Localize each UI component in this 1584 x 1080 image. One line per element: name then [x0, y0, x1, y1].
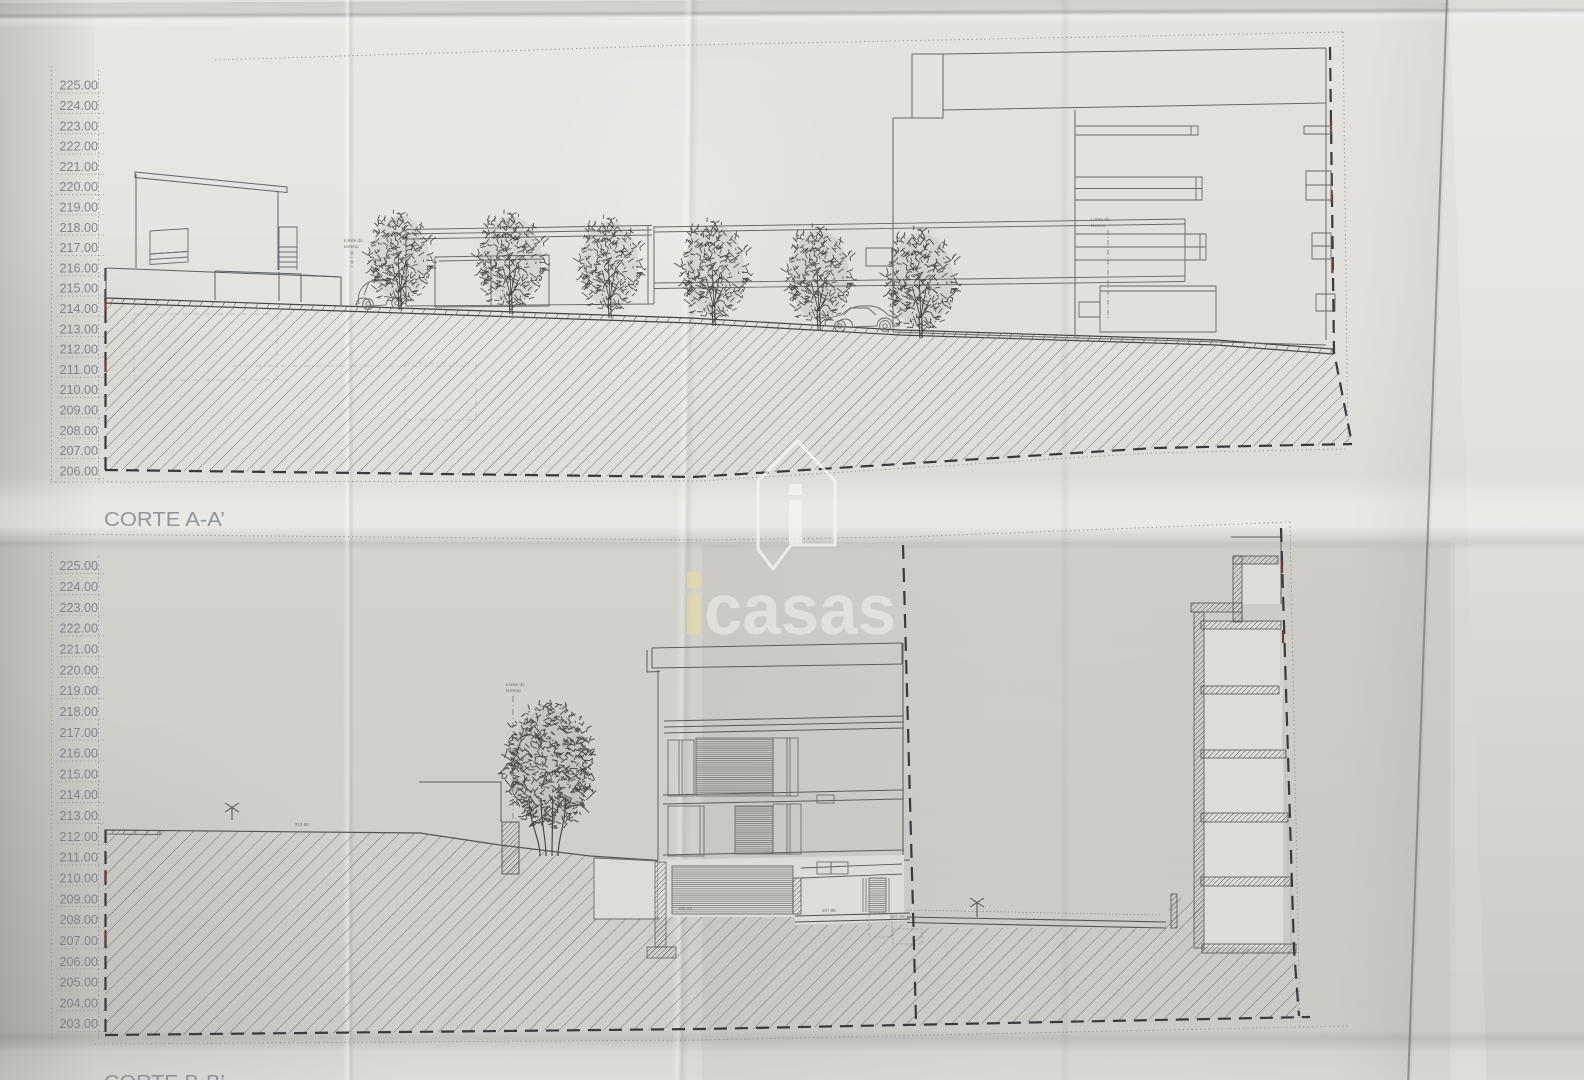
svg-text:221.00: 221.00: [60, 160, 99, 174]
svg-text:Limite do: Limite do: [1091, 217, 1110, 222]
svg-text:casas: casas: [704, 571, 896, 650]
svg-text:216.00: 216.00: [60, 747, 99, 761]
svg-text:terreno: terreno: [506, 688, 521, 693]
svg-text:211.00: 211.00: [60, 363, 99, 377]
svg-text:terreno: terreno: [1091, 223, 1106, 228]
svg-text:225.00: 225.00: [60, 79, 99, 93]
svg-text:212.00: 212.00: [60, 830, 99, 844]
svg-text:206.00: 206.00: [60, 464, 99, 478]
svg-text:208.00: 208.00: [60, 424, 99, 438]
svg-text:222.00: 222.00: [60, 140, 99, 154]
svg-text:terreno: terreno: [344, 244, 359, 249]
svg-text:217.00: 217.00: [60, 241, 99, 255]
svg-text:223.00: 223.00: [60, 601, 99, 615]
svg-text:220.00: 220.00: [60, 663, 99, 677]
svg-text:212.90: 212.90: [295, 822, 309, 827]
svg-text:216.00: 216.00: [60, 261, 99, 275]
svg-text:215.00: 215.00: [60, 767, 99, 781]
svg-text:224.00: 224.00: [60, 580, 99, 594]
svg-text:224.00: 224.00: [60, 99, 99, 113]
svg-text:207.85: 207.85: [822, 908, 836, 913]
svg-text:207.79: 207.79: [890, 914, 904, 919]
svg-text:212.00: 212.00: [60, 343, 99, 357]
svg-text:222.00: 222.00: [60, 622, 99, 636]
svg-text:209.00: 209.00: [60, 892, 99, 906]
svg-text:213.00: 213.00: [60, 809, 99, 823]
svg-text:223.00: 223.00: [60, 119, 99, 133]
svg-text:207.00: 207.00: [60, 444, 99, 458]
svg-text:217.00: 217.00: [60, 726, 99, 740]
svg-text:214.00: 214.00: [60, 302, 99, 316]
svg-text:208.00: 208.00: [60, 913, 99, 927]
svg-text:213.00: 213.00: [60, 322, 99, 336]
svg-text:225.00: 225.00: [60, 559, 99, 573]
svg-text:209.00: 209.00: [60, 404, 99, 418]
svg-text:207.00: 207.00: [60, 934, 99, 948]
svg-text:204.00: 204.00: [60, 996, 99, 1010]
svg-text:205.00: 205.00: [60, 976, 99, 990]
svg-text:210.00: 210.00: [60, 383, 99, 397]
svg-text:218.00: 218.00: [60, 705, 99, 719]
svg-text:210.00: 210.00: [60, 872, 99, 886]
svg-text:203.00: 203.00: [60, 1017, 99, 1031]
svg-text:219.00: 219.00: [60, 684, 99, 698]
svg-text:CORTE B-B’: CORTE B-B’: [104, 1072, 225, 1080]
svg-text:211.00: 211.00: [60, 851, 99, 865]
svg-text:218.00: 218.00: [60, 221, 99, 235]
svg-text:219.00: 219.00: [60, 201, 99, 215]
svg-text:206.00: 206.00: [60, 955, 99, 969]
svg-text:220.00: 220.00: [60, 180, 99, 194]
svg-text:Limite do: Limite do: [344, 238, 363, 243]
svg-text:215.00: 215.00: [60, 282, 99, 296]
svg-text:CORTE A-A’: CORTE A-A’: [104, 509, 225, 531]
svg-text:221.00: 221.00: [60, 643, 99, 657]
svg-text:Limite do: Limite do: [506, 682, 525, 687]
svg-text:214.00: 214.00: [60, 788, 99, 802]
svg-text:208.03: 208.03: [678, 906, 692, 911]
